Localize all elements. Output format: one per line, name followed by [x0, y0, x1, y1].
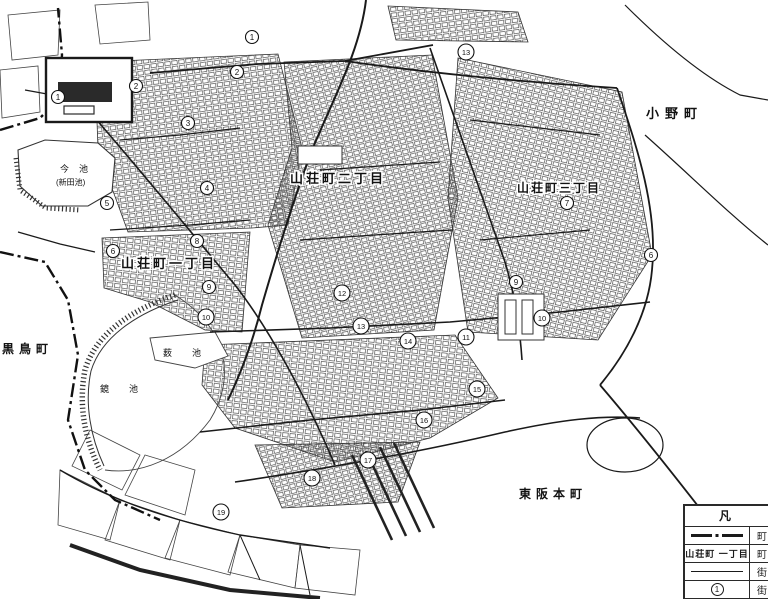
road [18, 232, 95, 252]
legend-row: 1街 [685, 581, 768, 599]
block-number-circle: 10 [198, 309, 214, 325]
legend-row-label: 街 [750, 564, 768, 579]
block-number-circle: 2 [231, 66, 244, 79]
map-label-ima-ike-alt: (新田池) [56, 177, 86, 187]
legend-row: 街 [685, 563, 768, 581]
apartment-building [522, 300, 533, 334]
block-number-text: 3 [186, 119, 191, 128]
block-number-circle: 7 [561, 197, 574, 210]
block-number-circle: 17 [360, 452, 376, 468]
block-number-circle: 15 [469, 381, 485, 397]
block-number-text: 9 [207, 283, 212, 292]
map-legend: 凡 町山荘町 一丁目町街1街 [683, 504, 768, 599]
map-label-kagami-ike: 鏡池 [100, 383, 158, 394]
block-number-text: 9 [514, 278, 519, 287]
block-number-text: 16 [420, 416, 428, 425]
legend-title: 凡 [685, 506, 768, 527]
block-number-text: 2 [134, 82, 139, 91]
legend-symbol-glyph: 山荘町 一丁目 [685, 547, 749, 560]
block-number-circle: 6 [107, 245, 120, 258]
block-number-circle: 4 [201, 182, 214, 195]
block-number-text: 1 [56, 93, 61, 102]
legend-symbol-street-line [685, 563, 750, 580]
map-label-sanso-3-chome: 山荘町三丁目 [517, 180, 601, 195]
block-number-text: 11 [462, 333, 470, 342]
parcel-zone [388, 6, 528, 42]
block-number-text: 17 [364, 456, 372, 465]
parcel-zone [102, 232, 250, 332]
map-label-ono-cho: 小野町 [646, 106, 703, 121]
legend-symbol-glyph [691, 571, 743, 572]
map-label-higashi-sakamoto-cho: 東阪本町 [519, 486, 587, 501]
block-number-circle: 16 [416, 412, 432, 428]
block-number-circle: 14 [400, 333, 416, 349]
block-number-circle: 2 [130, 80, 143, 93]
road-loop [587, 418, 663, 472]
legend-symbol-block-number: 1 [685, 581, 750, 598]
block-number-circle: 13 [353, 318, 369, 334]
road [300, 545, 310, 595]
block-number-text: 13 [462, 48, 470, 57]
city-block-map: 山荘町二丁目山荘町三丁目山荘町一丁目小野町黒鳥町東阪本町今池(新田池)鏡池薮池 … [0, 0, 768, 599]
block-number-text: 10 [202, 313, 210, 322]
block-number-text: 12 [338, 289, 346, 298]
map-label-kurotori-cho: 黒鳥町 [2, 341, 53, 356]
block-number-text: 19 [217, 508, 225, 517]
block-number-circle: 6 [645, 249, 658, 262]
map-page: 山荘町二丁目山荘町三丁目山荘町一丁目小野町黒鳥町東阪本町今池(新田池)鏡池薮池 … [0, 0, 768, 599]
legend-row-label: 町 [750, 546, 768, 561]
legend-row-label: 町 [750, 528, 768, 543]
block-number-text: 18 [308, 474, 316, 483]
legend-row: 町 [685, 527, 768, 545]
block-number-circle: 3 [182, 117, 195, 130]
legend-symbol-town-name: 山荘町 一丁目 [685, 545, 750, 562]
block-number-text: 6 [649, 251, 654, 260]
canal-band [70, 545, 320, 598]
map-label-sanso-2-chome: 山荘町二丁目 [290, 171, 386, 186]
map-label-ima-ike: 今池 [60, 163, 98, 174]
block-number-text: 2 [235, 68, 240, 77]
road [625, 5, 768, 100]
block-number-text: 7 [565, 199, 570, 208]
road [645, 135, 768, 245]
legend-symbol-boundary-line [685, 527, 750, 544]
block-number-circle: 19 [213, 504, 229, 520]
block-number-circle: 12 [334, 285, 350, 301]
pond-kagamiike-embankment-inner [88, 300, 178, 466]
block-number-circle: 11 [458, 329, 474, 345]
block-number-circle: 13 [458, 44, 474, 60]
danchi-block [298, 146, 342, 164]
block-number-text: 1 [250, 33, 255, 42]
legend-symbol-glyph: 1 [711, 583, 724, 596]
block-number-text: 10 [538, 314, 546, 323]
road [240, 535, 260, 580]
legend-symbol-glyph [691, 534, 743, 537]
block-number-text: 14 [404, 337, 412, 346]
block-number-circle: 9 [203, 281, 216, 294]
block-number-text: 5 [105, 199, 110, 208]
block-number-circle: 1 [52, 91, 65, 104]
block-number-text: 8 [195, 237, 200, 246]
block-number-circle: 10 [534, 310, 550, 326]
legend-rows: 町山荘町 一丁目町街1街 [685, 527, 768, 599]
block-number-circle: 9 [510, 276, 523, 289]
block-number-circle: 5 [101, 197, 114, 210]
block-number-text: 15 [473, 385, 481, 394]
block-number-circle: 18 [304, 470, 320, 486]
pond-kagamiike-embankment [82, 295, 175, 470]
block-number-text: 6 [111, 247, 116, 256]
apartment-building [505, 300, 516, 334]
block-number-text: 13 [357, 322, 365, 331]
block-number-text: 4 [205, 184, 210, 193]
block-number-circle: 1 [246, 31, 259, 44]
block-number-circle: 8 [191, 235, 204, 248]
legend-row-label: 街 [750, 582, 768, 597]
map-label-yabu-ike: 薮池 [163, 347, 221, 358]
school-building [58, 82, 112, 102]
legend-row: 山荘町 一丁目町 [685, 545, 768, 563]
map-label-sanso-1-chome: 山荘町一丁目 [121, 256, 217, 271]
